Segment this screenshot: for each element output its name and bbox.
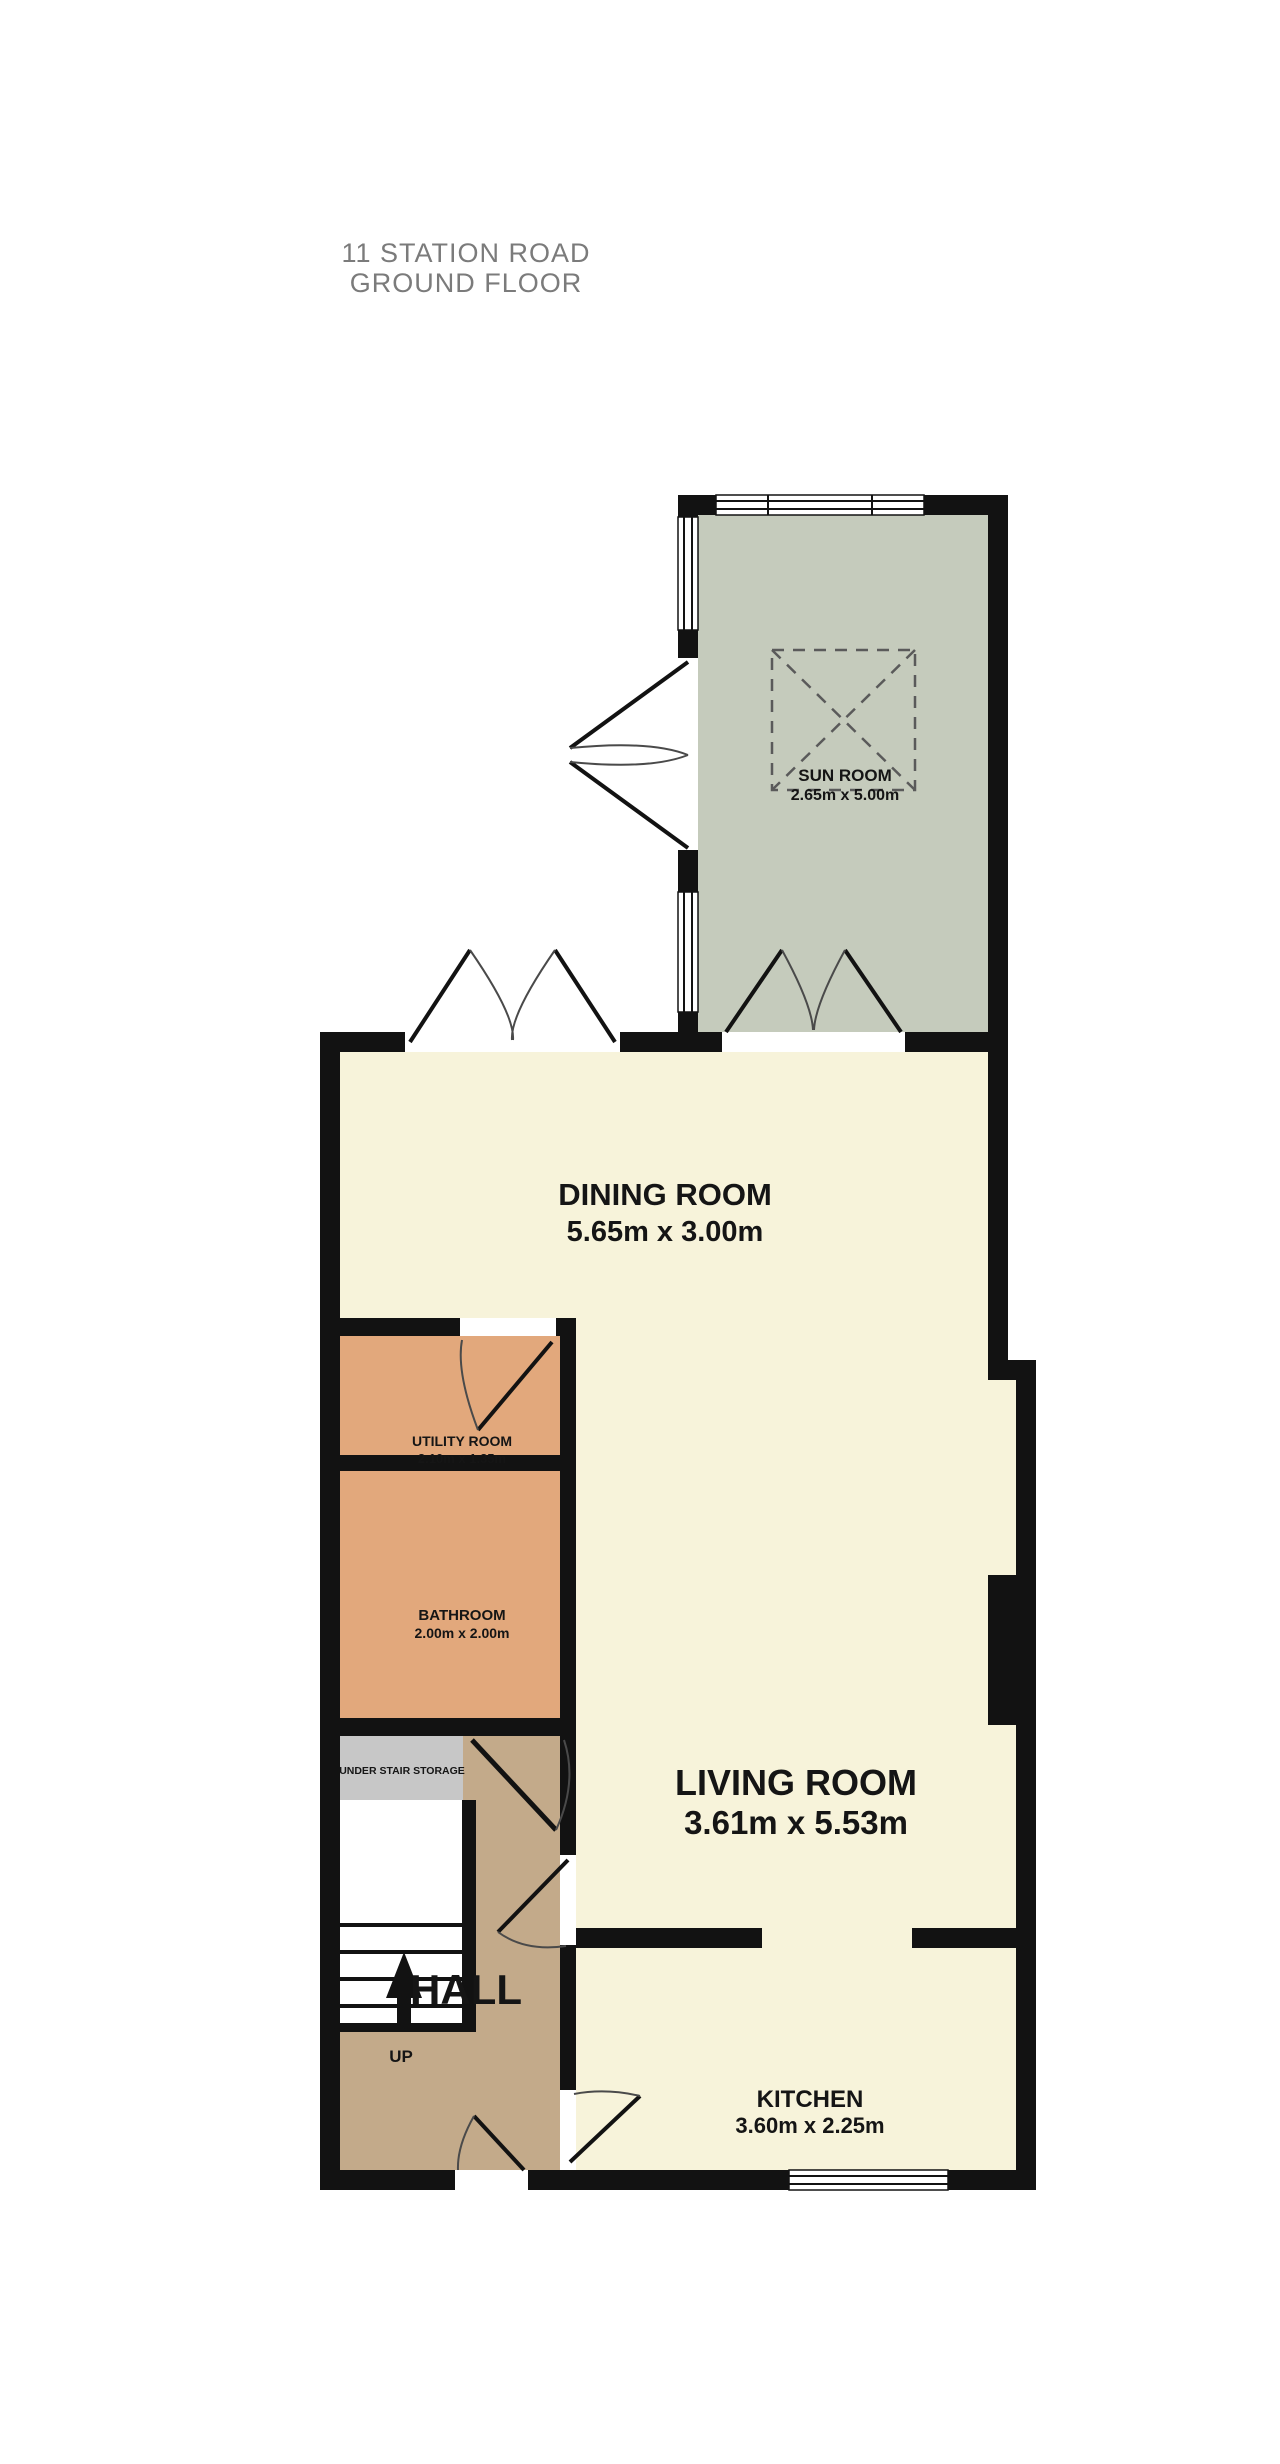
wall-dining-top-b [620,1032,722,1052]
bathroom-dims: 2.00m x 2.00m [415,1625,510,1641]
up-label: UP [389,2047,413,2066]
sun-room-dims: 2.65m x 5.00m [791,787,900,804]
wall-dining-top-c [905,1032,1008,1052]
dining-room-label: DINING ROOM [558,1177,772,1212]
chimney-breast [988,1575,1016,1725]
bathroom-floor [340,1471,560,1718]
bathroom-label: BATHROOM [418,1607,505,1624]
plan-title-line1: 11 STATION ROAD [341,238,590,268]
kitchen-label: KITCHEN [757,2086,864,2113]
wall-hall-living-b [560,1945,576,2090]
front-door-opening [455,2170,528,2190]
kitchen-window [789,2170,948,2190]
dining-room-dims: 5.65m x 3.00m [567,1216,764,1248]
living-room-dims: 3.61m x 5.53m [684,1804,908,1841]
wall-living-kitchen-a [576,1928,762,1948]
living-room-label: LIVING ROOM [675,1762,917,1803]
utility-room-dims: 2.10m x 1.35m [418,1451,506,1466]
up-arrow-shaft [397,1996,411,2030]
wall-bottom-c [948,2170,1036,2190]
floor-plan-drawing: 11 STATION ROAD GROUND FLOOR [0,0,1280,2464]
wall-sunroom-left-a [678,495,698,517]
plan-title-line2: GROUND FLOOR [350,268,583,298]
under-stair-storage-label: UNDER STAIR STORAGE [339,1765,465,1777]
utility-room-label: UTILITY ROOM [412,1433,512,1449]
wall-living-kitchen-b [912,1928,1016,1948]
wall-utility-top-a [340,1318,460,1336]
wall-bathroom-bottom [340,1718,576,1736]
wall-left [320,1032,340,2190]
kitchen-dims: 3.60m x 2.25m [735,2113,884,2138]
wall-sunroom-left-c [678,850,698,892]
wall-sunroom-left-b [678,630,698,658]
wall-right-lower [1016,1360,1036,2190]
wall-right-upper [988,495,1008,1380]
sun-room-label: SUN ROOM [798,766,892,785]
sunroom-top-window [716,495,924,515]
wall-bottom-b [528,2170,789,2190]
hall-label: HALL [410,1966,522,2013]
sunroom-left-window-upper [678,517,698,630]
floor-plan-page: 11 STATION ROAD GROUND FLOOR [0,0,1280,2464]
wall-bottom-a [320,2170,455,2190]
sunroom-left-window-lower [678,892,698,1012]
living-room-upper-floor [576,1318,988,1380]
wall-hall-living-a [560,1318,576,1855]
